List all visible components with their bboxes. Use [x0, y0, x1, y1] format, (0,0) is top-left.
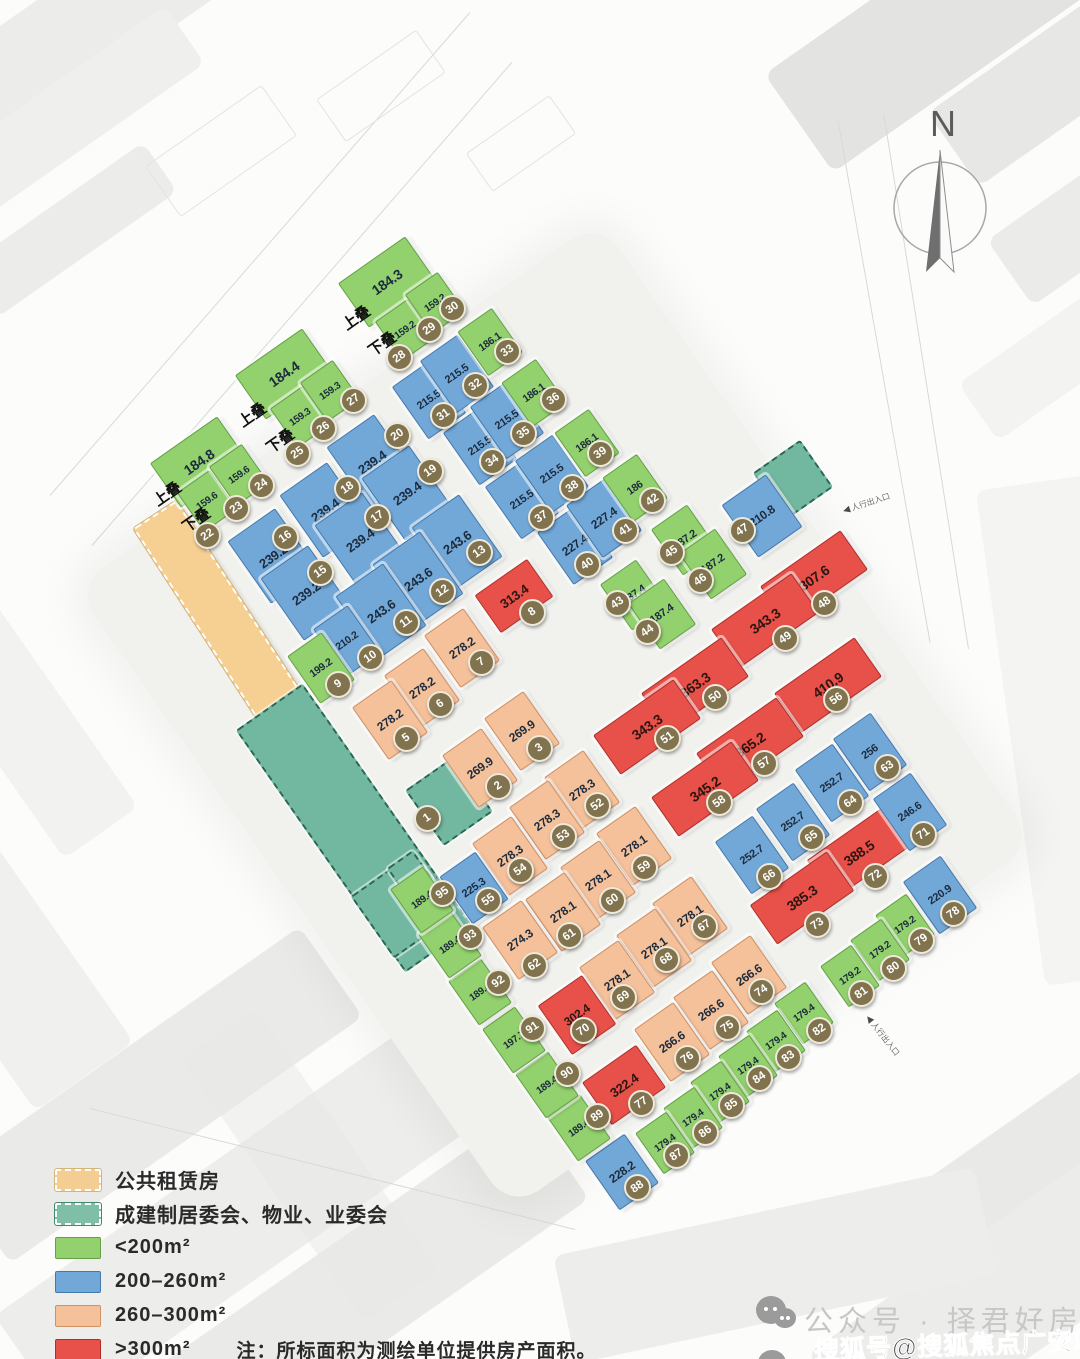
plot-number-badge: 5 — [393, 725, 420, 752]
plot-number-badge: 56 — [823, 686, 850, 713]
plot-number-badge: 83 — [775, 1044, 802, 1071]
ghost-footprint — [316, 30, 446, 143]
plot-number-badge: 73 — [804, 911, 831, 938]
plot-number-badge: 47 — [729, 517, 756, 544]
plot-number-badge: 60 — [599, 887, 626, 914]
legend-label: 公共租赁房 — [115, 1165, 220, 1194]
plot-number-badge: 32 — [462, 372, 489, 399]
plot-number-badge: 3 — [526, 735, 553, 762]
plot-number-badge: 89 — [584, 1103, 611, 1130]
legend-label: <200m² — [115, 1236, 191, 1259]
plot-number-badge: 58 — [706, 789, 733, 816]
plot-number-badge: 71 — [910, 821, 937, 848]
plot-number-badge: 13 — [466, 539, 493, 566]
plot-number-badge: 55 — [475, 887, 502, 914]
plot-number-badge: 80 — [880, 955, 907, 982]
legend-swatch-teal-dashed — [55, 1203, 101, 1225]
plot-number-badge: 86 — [692, 1119, 719, 1146]
building-area-label: 184.4 — [266, 358, 303, 390]
legend-label: >300m² — [115, 1338, 191, 1359]
plot-number-badge: 61 — [556, 922, 583, 949]
plot-number-badge: 11 — [393, 609, 420, 636]
plot-number-badge: 62 — [521, 952, 548, 979]
legend-row: 200–260m² — [55, 1270, 597, 1293]
legend-label: 260–300m² — [115, 1304, 226, 1327]
ghost-footprint — [466, 95, 577, 192]
plot-number-badge: 78 — [940, 900, 967, 927]
building-area-label: 385.3 — [784, 882, 821, 914]
plot-number-badge: 70 — [570, 1017, 597, 1044]
plot-number-badge: 72 — [862, 863, 889, 890]
plot-number-badge: 75 — [714, 1014, 741, 1041]
plot-number-badge: 12 — [429, 578, 456, 605]
legend-swatch-orange-dashed — [55, 1169, 101, 1191]
plot-number-badge: 87 — [663, 1142, 690, 1169]
plot-number-badge: 6 — [427, 691, 454, 718]
plot-number-badge: 10 — [357, 644, 384, 671]
plot-number-badge: 76 — [674, 1045, 701, 1072]
building-area-label: 210.2 — [333, 629, 360, 653]
plot-number-badge: 82 — [806, 1017, 833, 1044]
plot-number-badge: 17 — [364, 504, 391, 531]
wechat-icon-clipped — [758, 1350, 786, 1359]
plot-number-badge: 51 — [654, 725, 681, 752]
plot-number-badge: 23 — [223, 495, 250, 522]
plot-number-badge: 35 — [510, 420, 537, 447]
entrance-arrow-icon: ◀ — [864, 1013, 876, 1025]
pedestrian-entrance-marker: ◀人行出入口 — [841, 491, 891, 517]
plot-number-badge: 63 — [874, 754, 901, 781]
compass-needle-light — [940, 150, 954, 272]
building-area-label: 159.3 — [287, 406, 313, 429]
plot-number-badge: 85 — [718, 1092, 745, 1119]
plot-number-badge: 49 — [772, 625, 799, 652]
entrance-arrow-icon: ◀ — [841, 504, 851, 516]
legend-row: 260–300m² — [55, 1304, 597, 1327]
plot-number-badge: 20 — [384, 422, 411, 449]
plot-number-badge: 37 — [528, 504, 555, 531]
plot-number-badge: 74 — [748, 978, 775, 1005]
plot-number-badge: 84 — [746, 1065, 773, 1092]
plot-number-badge: 81 — [848, 980, 875, 1007]
north-letter: N — [930, 103, 956, 144]
plot-number-badge: 68 — [653, 946, 680, 973]
building-area-label: 274.3 — [504, 926, 535, 954]
plot-number-badge: 43 — [604, 590, 631, 617]
plot-number-badge: 33 — [494, 338, 521, 365]
plot-number-badge: 48 — [811, 590, 838, 617]
site-plan-page: 184.8159.6159.6184.4159.3159.3184.3159.2… — [0, 0, 1080, 1359]
plot-number-badge: 59 — [631, 854, 658, 881]
plot-number-badge: 7 — [468, 649, 495, 676]
plot-number-badge: 16 — [272, 524, 299, 551]
plot-number-badge: 91 — [519, 1015, 546, 1042]
legend-row: 公共租赁房 — [55, 1168, 597, 1191]
legend-note: 注：所标面积为测绘单位提供房产面积。 — [237, 1336, 597, 1359]
plot-number-badge: 19 — [417, 458, 444, 485]
plot-number-badge: 57 — [751, 750, 778, 777]
building-area-label: 159.3 — [317, 380, 343, 403]
bg-block — [976, 474, 1080, 986]
plot-number-badge: 93 — [457, 923, 484, 950]
plot-number-badge: 26 — [310, 415, 337, 442]
legend-row: <200m² — [55, 1236, 597, 1259]
legend-row: >300m²注：所标面积为测绘单位提供房产面积。 — [55, 1338, 597, 1359]
ghost-footprint — [145, 85, 297, 217]
legend-swatch-peach — [55, 1305, 101, 1327]
plot-number-badge: 88 — [624, 1174, 651, 1201]
legend-swatch-blue — [55, 1271, 101, 1293]
legend-swatch-red — [55, 1339, 101, 1359]
plot-number-badge: 2 — [485, 773, 512, 800]
plot-number-badge: 39 — [587, 440, 614, 467]
building-area-label: 239.4 — [390, 478, 424, 508]
plot-number-badge: 41 — [612, 517, 639, 544]
building-area-label: 184.3 — [369, 266, 406, 298]
plot-number-badge: 79 — [908, 927, 935, 954]
north-compass: N — [878, 88, 1008, 308]
pedestrian-entrance-marker: ◀人行出入口 — [863, 1013, 902, 1058]
plot-number-badge: 54 — [507, 857, 534, 884]
plot-number-badge: 53 — [550, 823, 577, 850]
building-area-label: 278.1 — [547, 898, 578, 926]
plot-number-badge: 42 — [639, 487, 666, 514]
plot-number-badge: 95 — [429, 880, 456, 907]
plot-number-badge: 44 — [634, 618, 661, 645]
plot-number-badge: 8 — [519, 599, 546, 626]
plot-number-badge: 45 — [658, 539, 685, 566]
plot-number-badge: 38 — [559, 474, 586, 501]
wechat-icon-small — [774, 1308, 796, 1328]
plot-number-badge: 15 — [307, 559, 334, 586]
legend-label: 200–260m² — [115, 1270, 226, 1293]
plot-number-badge: 40 — [574, 551, 601, 578]
legend: 公共租赁房成建制居委会、物业、业委会<200m²200–260m²260–300… — [55, 1168, 597, 1359]
plot-number-badge: 9 — [325, 671, 352, 698]
plot-number-badge: 24 — [248, 472, 275, 499]
plot-number-badge: 1 — [414, 805, 441, 832]
plot-number-badge: 31 — [430, 402, 457, 429]
plot-number-badge: 36 — [540, 386, 567, 413]
plot-number-badge: 29 — [416, 316, 443, 343]
plot-number-badge: 65 — [798, 824, 825, 851]
plot-number-badge: 92 — [485, 969, 512, 996]
plot-number-badge: 77 — [628, 1090, 655, 1117]
plot-number-badge: 90 — [554, 1060, 581, 1087]
legend-row: 成建制居委会、物业、业委会 — [55, 1202, 597, 1225]
plot-number-badge: 50 — [702, 684, 729, 711]
plot-number-badge: 64 — [837, 789, 864, 816]
building-area-label: 252.7 — [738, 843, 766, 868]
plot-number-badge: 18 — [334, 475, 361, 502]
legend-swatch-green — [55, 1237, 101, 1259]
plot-number-badge: 46 — [687, 567, 714, 594]
legend-label: 成建制居委会、物业、业委会 — [115, 1199, 388, 1228]
plot-number-badge: 30 — [439, 295, 466, 322]
plot-number-badge: 34 — [479, 448, 506, 475]
plot-number-badge: 27 — [340, 387, 367, 414]
plot-number-badge: 67 — [691, 913, 718, 940]
plot-number-badge: 52 — [584, 792, 611, 819]
plot-number-badge: 66 — [756, 863, 783, 890]
plot-number-badge: 69 — [610, 984, 637, 1011]
compass-needle-dark — [926, 150, 940, 272]
